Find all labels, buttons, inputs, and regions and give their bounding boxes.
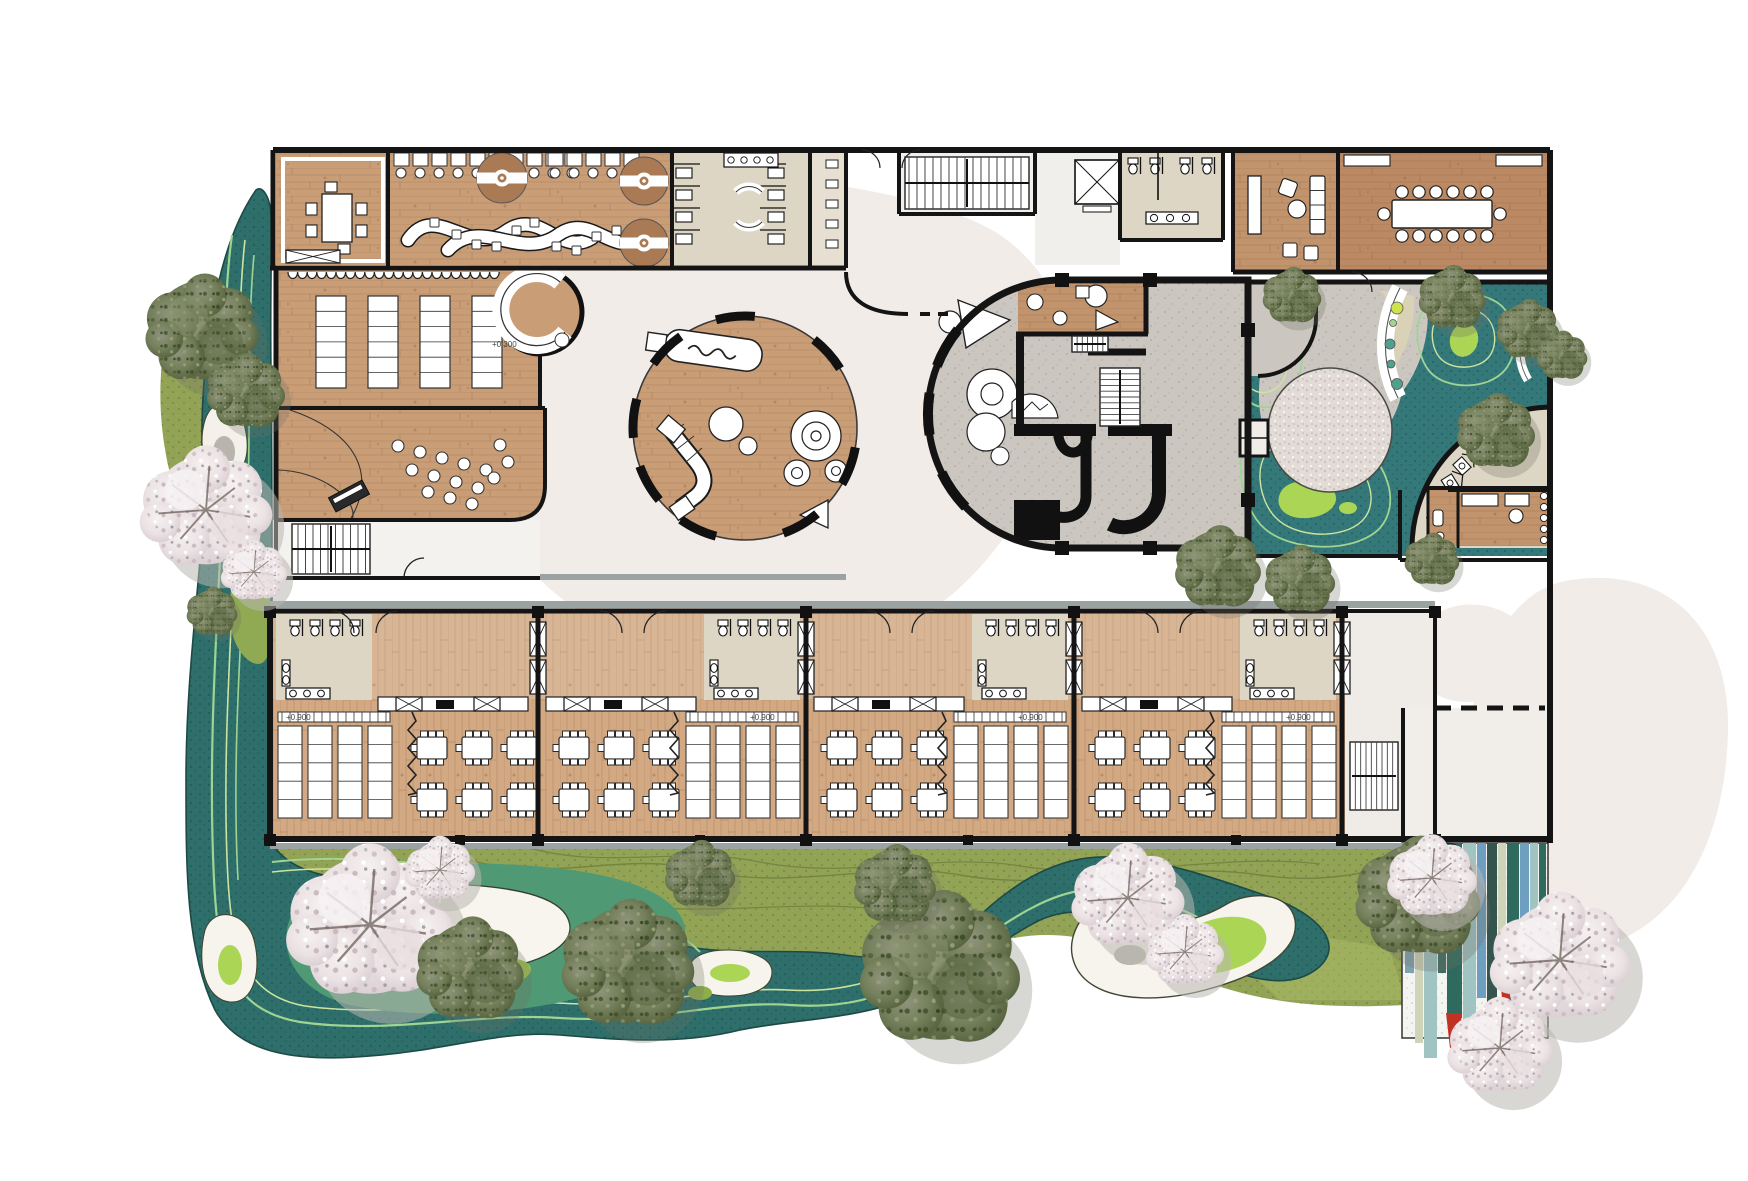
svg-text:+0.300: +0.300 bbox=[492, 340, 517, 349]
svg-text:+0.900: +0.900 bbox=[750, 713, 775, 722]
svg-text:+0.900: +0.900 bbox=[1286, 713, 1311, 722]
svg-text:+0.900: +0.900 bbox=[286, 713, 311, 722]
svg-text:+0.900: +0.900 bbox=[1018, 713, 1043, 722]
